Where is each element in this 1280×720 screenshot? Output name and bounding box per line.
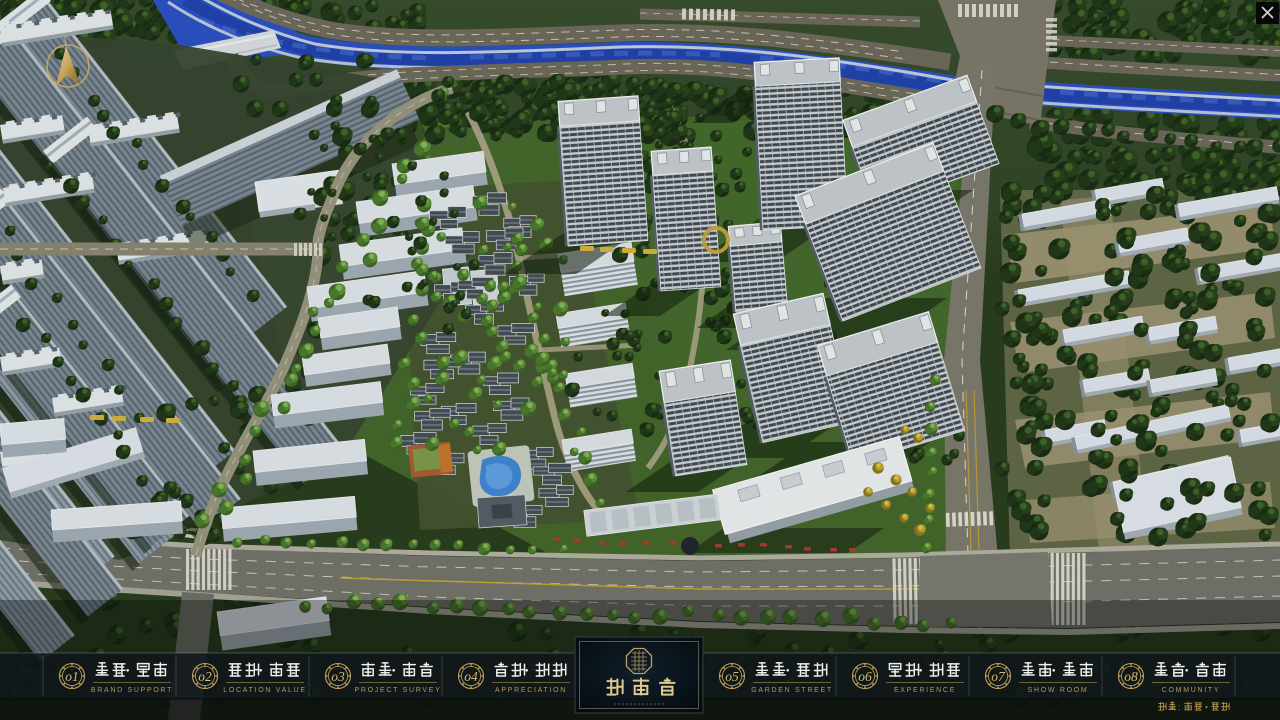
svg-text:PROJECT SURVEY: PROJECT SURVEY [355,687,442,694]
svg-text:o6: o6 [858,669,872,684]
svg-text:o2: o2 [198,669,212,684]
svg-text:o1: o1 [65,669,79,684]
svg-text::: : [1178,702,1180,712]
svg-text:GARDEN STREET: GARDEN STREET [751,687,833,694]
svg-text:APPRECIATION: APPRECIATION [495,687,567,694]
svg-text:LOCATION VALUE: LOCATION VALUE [223,687,306,694]
svg-text:SHOW ROOM: SHOW ROOM [1028,687,1089,694]
svg-text:o7: o7 [991,669,1006,684]
svg-text:BRAND SUPPORT: BRAND SUPPORT [91,687,173,694]
svg-text:COMMUNITY: COMMUNITY [1162,687,1220,694]
svg-text:o3: o3 [331,669,345,684]
svg-text:EXPERIENCE: EXPERIENCE [894,687,956,694]
svg-text:o4: o4 [464,669,478,684]
svg-text:o5: o5 [725,669,739,684]
svg-text:o8: o8 [1124,669,1138,684]
